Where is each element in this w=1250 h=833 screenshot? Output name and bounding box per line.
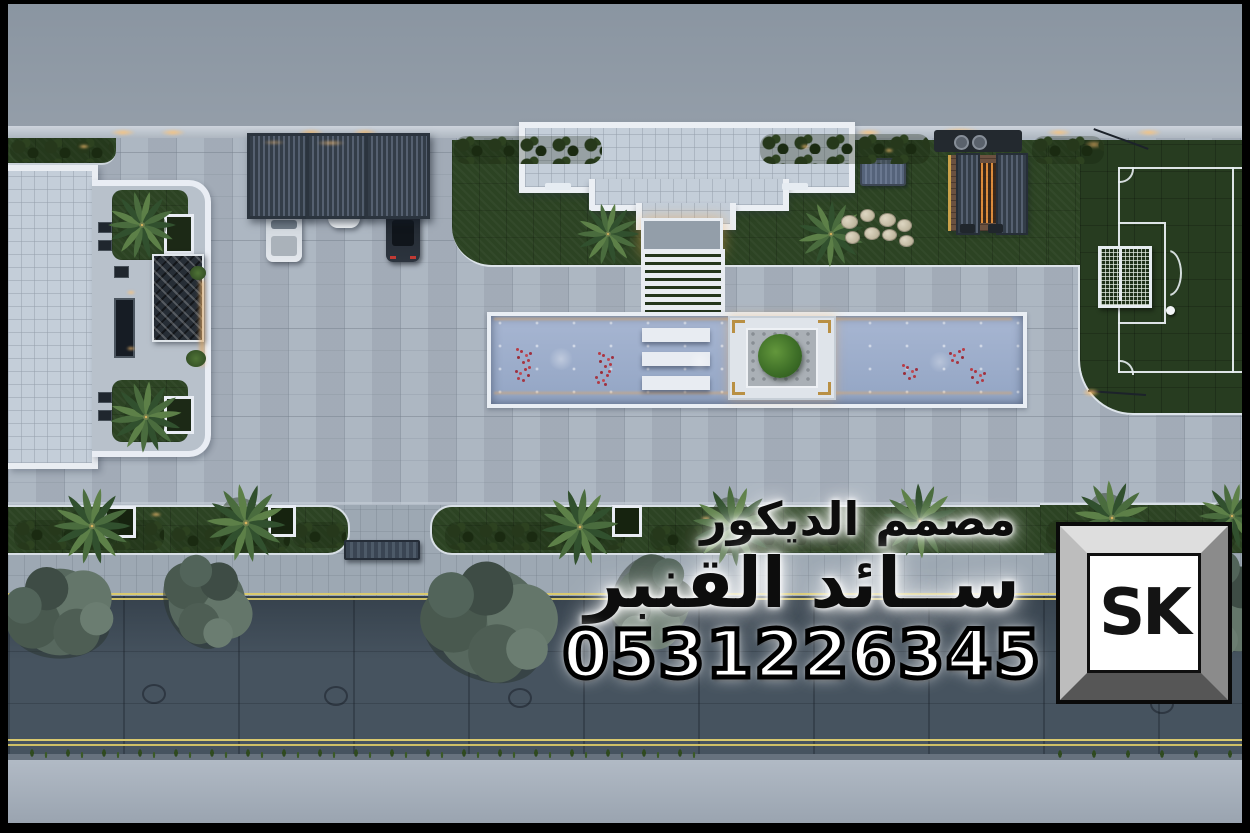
manhole bbox=[324, 686, 348, 706]
top-wall-band bbox=[8, 4, 1242, 130]
wall-light bbox=[1136, 129, 1162, 136]
watermark-designer-name: ســائد القنبر bbox=[563, 548, 1042, 618]
pool-step-slab bbox=[642, 328, 710, 342]
stepping-stone bbox=[864, 227, 880, 240]
curb-grass-tufts bbox=[1052, 748, 1232, 760]
flower-petals bbox=[970, 368, 973, 371]
stepping-stone bbox=[879, 213, 896, 227]
car-windshield bbox=[271, 220, 297, 229]
grill-burner bbox=[972, 135, 987, 150]
lounge-chair bbox=[960, 224, 975, 233]
villa-window bbox=[114, 266, 129, 278]
curb-grass-tufts bbox=[24, 746, 704, 760]
roof-vent bbox=[782, 183, 808, 190]
shrub-light bbox=[78, 144, 90, 149]
sk-logo-face: SK bbox=[1087, 553, 1201, 673]
flower-petals bbox=[962, 348, 965, 351]
pergola-roof-panel bbox=[996, 153, 1028, 235]
field-touchline-bottom bbox=[1118, 371, 1242, 373]
door-light bbox=[126, 290, 136, 295]
island-tree bbox=[758, 334, 802, 378]
roof-vent bbox=[545, 183, 571, 190]
island-corner-bracket bbox=[732, 382, 745, 395]
villa-roof bbox=[8, 165, 98, 469]
designer-watermark: مصمم الديكور ســائد القنبر 0531226345 bbox=[563, 496, 1042, 688]
lounge-chair bbox=[988, 224, 1003, 233]
shrub-flowers bbox=[884, 148, 894, 153]
fountain-ripple bbox=[688, 352, 712, 372]
street-bench bbox=[344, 540, 420, 560]
field-touchline-top bbox=[1118, 167, 1242, 169]
pool-step-slab bbox=[642, 376, 710, 390]
lawn-shrubs bbox=[760, 134, 930, 164]
sk-logo: SK bbox=[1056, 522, 1232, 704]
render-frame: مصمم الديكور ســائد القنبر 0531226345 SK bbox=[0, 0, 1250, 833]
lawn-shrubs bbox=[454, 136, 602, 164]
island-corner-bracket bbox=[818, 320, 831, 333]
wall-light bbox=[1046, 129, 1072, 136]
canopy-plant bbox=[186, 350, 206, 367]
flower-petals bbox=[902, 364, 905, 367]
watermark-phone-number: 0531226345 bbox=[563, 622, 1042, 688]
watermark-title: مصمم الديكور bbox=[563, 496, 1042, 542]
frame-border-bottom bbox=[0, 823, 1250, 833]
stepping-stone bbox=[860, 209, 875, 222]
hedge-light bbox=[150, 512, 162, 517]
stepping-stone bbox=[845, 231, 860, 244]
field-right-line bbox=[1232, 167, 1234, 373]
sk-logo-text: SK bbox=[1099, 576, 1189, 650]
palm-tree bbox=[106, 189, 178, 261]
shrub-flowers bbox=[800, 144, 810, 149]
canopy-plant bbox=[190, 266, 206, 280]
carport-light bbox=[316, 140, 346, 146]
stepping-stone bbox=[841, 215, 858, 229]
path-lamp-glow bbox=[1082, 388, 1100, 397]
carport-canopy bbox=[247, 133, 310, 219]
suv-sunroof bbox=[392, 220, 414, 246]
football-ball bbox=[1166, 306, 1175, 315]
fountain-ripple bbox=[928, 352, 952, 372]
island-corner-bracket bbox=[732, 320, 745, 333]
carport-light bbox=[262, 140, 286, 145]
stepping-stone bbox=[897, 219, 912, 232]
wall-light bbox=[160, 129, 186, 136]
football-goal bbox=[1098, 246, 1152, 308]
carport-canopy bbox=[306, 133, 369, 219]
wall-light bbox=[110, 129, 136, 136]
goal-crossbar bbox=[1119, 247, 1122, 301]
stepping-stone bbox=[882, 229, 897, 241]
suv-taillights bbox=[390, 256, 416, 259]
flower-petals bbox=[598, 352, 601, 355]
entry-shrubs bbox=[10, 138, 114, 162]
frame-border-left bbox=[0, 0, 8, 833]
frame-border-top bbox=[0, 0, 1250, 4]
street-tree bbox=[0, 552, 120, 672]
palm-tree bbox=[575, 201, 641, 267]
fountain-ripple bbox=[548, 348, 574, 370]
carport-canopy bbox=[365, 133, 430, 219]
bottom-wall-band bbox=[8, 760, 1242, 823]
door-light bbox=[126, 346, 136, 351]
frame-border-right bbox=[1242, 0, 1250, 833]
manhole bbox=[142, 684, 166, 704]
lawn-shrubs bbox=[1032, 136, 1104, 164]
island-corner-bracket bbox=[818, 382, 831, 395]
car-bed bbox=[271, 236, 297, 256]
sk-logo-bevel: SK bbox=[1060, 526, 1228, 700]
garden-stairs bbox=[641, 249, 725, 313]
flower-petals bbox=[608, 370, 611, 373]
grill-burner bbox=[954, 135, 969, 150]
stepping-stone bbox=[899, 235, 914, 247]
flower-petals bbox=[528, 366, 531, 369]
pergola-roof-panel bbox=[956, 153, 980, 235]
flower-petals bbox=[516, 348, 519, 351]
